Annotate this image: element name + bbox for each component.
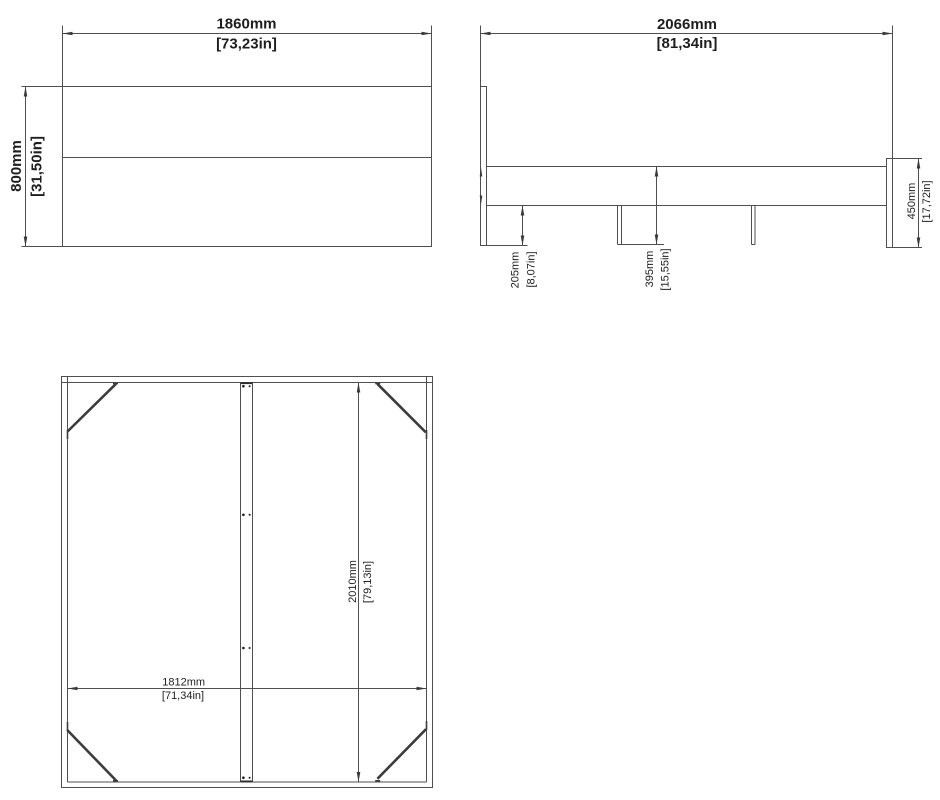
svg-text:[71,34in]: [71,34in] [162, 690, 204, 702]
svg-text:[79,13in]: [79,13in] [362, 561, 374, 603]
svg-text:1860mm: 1860mm [216, 16, 276, 33]
svg-text:395mm: 395mm [644, 251, 656, 288]
svg-text:[31,50in]: [31,50in] [29, 136, 46, 197]
svg-text:2010mm: 2010mm [347, 560, 359, 603]
svg-text:800mm: 800mm [8, 140, 25, 192]
svg-text:[17,72in]: [17,72in] [921, 180, 933, 222]
svg-text:205mm: 205mm [509, 252, 521, 289]
svg-text:[15,55in]: [15,55in] [659, 248, 671, 290]
svg-text:1812mm: 1812mm [162, 677, 205, 689]
svg-text:[81,34in]: [81,34in] [657, 35, 718, 52]
svg-text:[73,23in]: [73,23in] [216, 36, 277, 53]
svg-text:[8,07in]: [8,07in] [525, 251, 537, 287]
svg-text:2066mm: 2066mm [657, 16, 717, 33]
svg-text:450mm: 450mm [906, 183, 918, 220]
